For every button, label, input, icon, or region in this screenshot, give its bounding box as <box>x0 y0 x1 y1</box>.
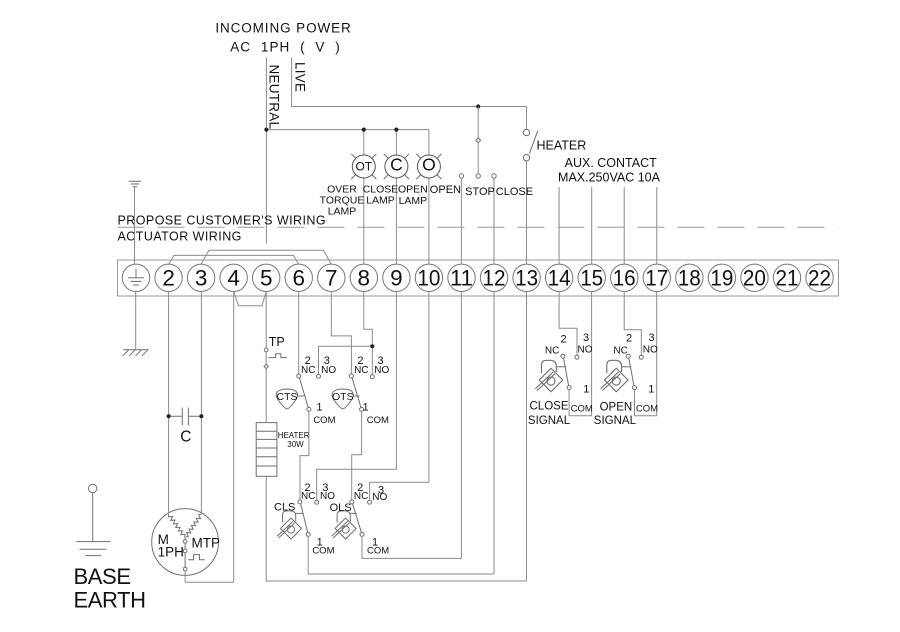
svg-text:OPEN: OPEN <box>600 402 633 414</box>
svg-text:COM: COM <box>367 415 389 426</box>
svg-text:13: 13 <box>515 266 538 291</box>
svg-text:1: 1 <box>583 384 589 396</box>
svg-text:AUX. CONTACT: AUX. CONTACT <box>565 156 657 170</box>
svg-text:HEATER: HEATER <box>278 431 310 440</box>
svg-text:9: 9 <box>390 266 403 291</box>
svg-text:30W: 30W <box>287 440 304 449</box>
svg-text:11: 11 <box>450 266 473 291</box>
svg-text:18: 18 <box>678 266 701 291</box>
svg-text:LAMP: LAMP <box>366 195 395 207</box>
svg-text:O: O <box>422 155 436 175</box>
svg-text:ACTUATOR WIRING: ACTUATOR WIRING <box>118 229 242 243</box>
svg-text:EARTH: EARTH <box>74 588 146 613</box>
svg-text:1: 1 <box>363 402 369 414</box>
svg-text:NC: NC <box>613 346 627 357</box>
svg-text:10: 10 <box>417 266 440 291</box>
svg-text:20: 20 <box>743 266 766 291</box>
svg-text:NC: NC <box>301 365 315 376</box>
svg-text:NC: NC <box>545 346 559 357</box>
svg-text:OPEN: OPEN <box>398 184 428 196</box>
svg-text:22: 22 <box>808 266 831 291</box>
svg-text:OLS: OLS <box>330 502 352 514</box>
svg-text:15: 15 <box>580 266 603 291</box>
svg-text:2: 2 <box>560 334 566 346</box>
svg-text:SIGNAL: SIGNAL <box>594 415 637 427</box>
svg-text:HEATER: HEATER <box>537 139 587 153</box>
svg-text:TP: TP <box>269 335 285 349</box>
svg-text:3: 3 <box>648 332 654 344</box>
svg-text:AC 1PH ( V ): AC 1PH ( V ) <box>230 40 341 55</box>
svg-text:LAMP: LAMP <box>328 205 357 217</box>
svg-text:1: 1 <box>316 402 322 414</box>
svg-text:CLS: CLS <box>274 502 295 514</box>
svg-text:COM: COM <box>367 545 389 556</box>
svg-text:OPEN: OPEN <box>430 184 461 196</box>
svg-text:6: 6 <box>293 266 306 291</box>
svg-text:7: 7 <box>325 266 338 291</box>
svg-text:LIVE: LIVE <box>293 62 308 92</box>
svg-text:INCOMING POWER: INCOMING POWER <box>215 21 351 36</box>
svg-text:COM: COM <box>571 403 593 414</box>
svg-text:C: C <box>180 429 191 446</box>
svg-text:12: 12 <box>483 266 506 291</box>
svg-text:3: 3 <box>583 332 589 344</box>
svg-text:NO: NO <box>578 345 593 356</box>
svg-text:2: 2 <box>626 333 632 345</box>
svg-text:SIGNAL: SIGNAL <box>528 415 571 427</box>
svg-text:14: 14 <box>548 266 571 291</box>
svg-text:3: 3 <box>195 266 208 291</box>
svg-text:LAMP: LAMP <box>399 195 428 207</box>
svg-text:NEUTRAL: NEUTRAL <box>267 65 282 130</box>
svg-text:16: 16 <box>613 266 636 291</box>
svg-text:BASE: BASE <box>74 564 131 589</box>
svg-text:C: C <box>390 155 403 175</box>
svg-text:MAX.250VAC 10A: MAX.250VAC 10A <box>558 171 661 185</box>
svg-text:NO: NO <box>643 345 658 356</box>
svg-text:CLOSE: CLOSE <box>496 186 533 198</box>
svg-text:21: 21 <box>776 266 799 291</box>
svg-text:5: 5 <box>260 266 273 291</box>
svg-text:NO: NO <box>321 365 336 376</box>
svg-text:17: 17 <box>645 266 668 291</box>
svg-text:CTS: CTS <box>277 391 298 403</box>
svg-text:NO: NO <box>374 365 389 376</box>
svg-text:8: 8 <box>358 266 371 291</box>
svg-text:NO: NO <box>320 491 335 502</box>
svg-text:NO: NO <box>372 492 387 503</box>
svg-text:MTP: MTP <box>192 536 221 551</box>
svg-text:OT: OT <box>355 159 372 173</box>
svg-text:COM: COM <box>312 545 334 556</box>
svg-text:STOP: STOP <box>465 186 495 198</box>
svg-text:COM: COM <box>636 403 658 414</box>
svg-text:1PH: 1PH <box>158 545 184 560</box>
svg-text:CLOSE: CLOSE <box>363 183 399 195</box>
svg-text:1: 1 <box>648 384 654 396</box>
svg-text:2: 2 <box>162 266 175 291</box>
svg-text:CLOSE: CLOSE <box>530 401 569 413</box>
svg-text:NC: NC <box>354 491 368 502</box>
svg-text:19: 19 <box>710 266 733 291</box>
svg-text:4: 4 <box>227 266 240 291</box>
svg-text:NC: NC <box>301 491 315 502</box>
svg-text:OTS: OTS <box>332 391 354 403</box>
svg-text:NC: NC <box>354 365 368 376</box>
svg-text:PROPOSE CUSTOMER'S WIRING: PROPOSE CUSTOMER'S WIRING <box>118 213 327 227</box>
svg-text:COM: COM <box>313 415 335 426</box>
